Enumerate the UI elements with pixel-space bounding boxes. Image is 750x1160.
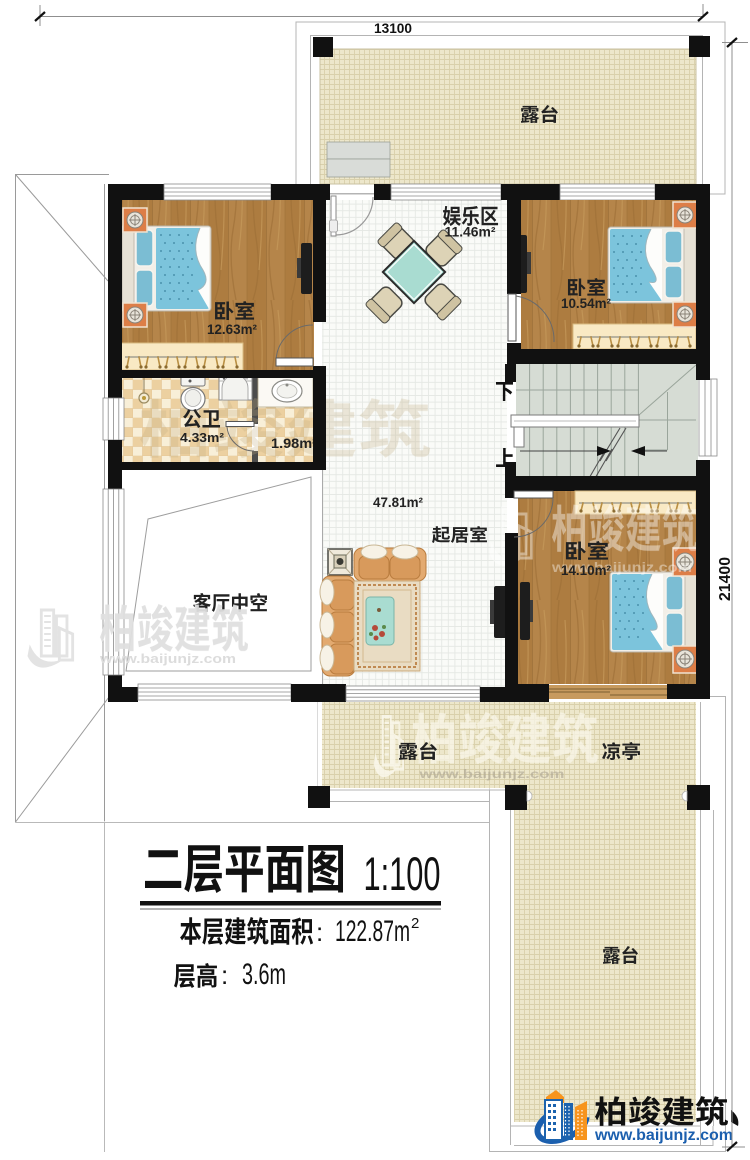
svg-text:1.98m²: 1.98m² (271, 436, 318, 451)
svg-text:12.63m²: 12.63m² (207, 322, 257, 337)
svg-text:47.81m²: 47.81m² (373, 494, 423, 510)
svg-text:14.10m²: 14.10m² (561, 563, 611, 578)
svg-text:13100: 13100 (374, 20, 412, 36)
svg-text:2: 2 (411, 915, 419, 932)
svg-text::: : (316, 917, 323, 947)
svg-text:1:100: 1:100 (364, 847, 441, 900)
svg-text:21400: 21400 (717, 557, 734, 601)
svg-text:www.baijunjz.com: www.baijunjz.com (99, 651, 236, 666)
svg-text:122.87m: 122.87m (335, 915, 410, 948)
svg-text:www.baijunjz.com: www.baijunjz.com (594, 1127, 733, 1144)
svg-text:10.54m²: 10.54m² (561, 296, 611, 311)
svg-text::: : (221, 960, 228, 990)
svg-text:11.46m²: 11.46m² (445, 225, 497, 240)
svg-text:3.6m: 3.6m (242, 958, 286, 991)
svg-text:4.33m²: 4.33m² (180, 430, 225, 445)
svg-text:www.baijunjz.com: www.baijunjz.com (418, 767, 564, 781)
